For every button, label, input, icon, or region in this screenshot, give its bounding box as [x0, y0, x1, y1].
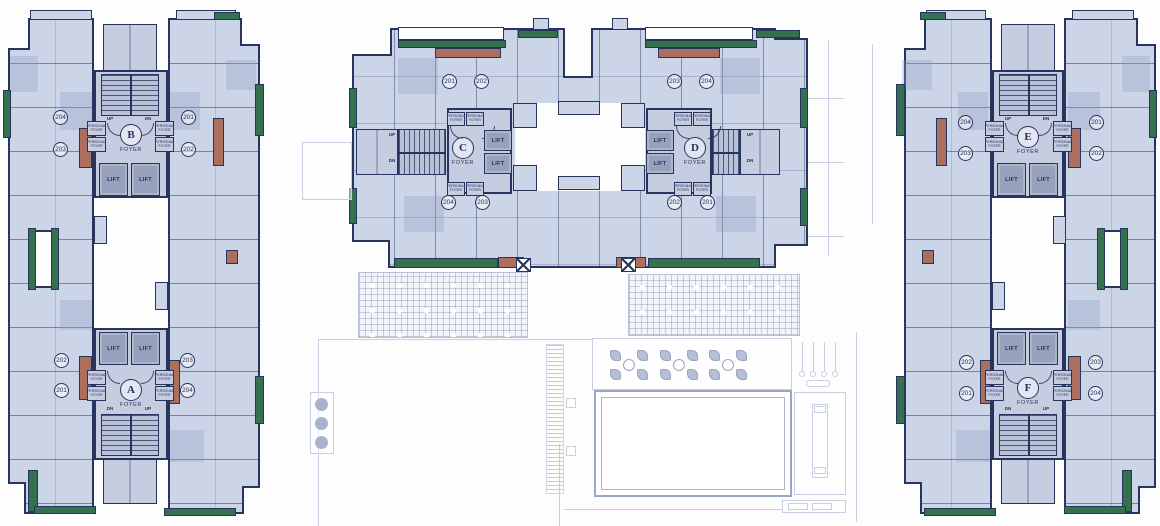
paving-line: [564, 509, 782, 510]
boundary-marker: [566, 398, 576, 408]
deck-slab: [788, 503, 808, 510]
pergola-post-line: [824, 342, 825, 372]
bench: [806, 380, 830, 387]
pergola-post: [832, 371, 838, 377]
chair-icon: [736, 350, 747, 361]
pergola-post: [821, 371, 827, 377]
chair-icon: [637, 350, 648, 361]
pool-inner-edge: [601, 397, 785, 490]
planter: [315, 398, 328, 411]
boundary-marker: [566, 446, 576, 456]
deck-slab: [812, 503, 832, 510]
chair-icon: [637, 369, 648, 380]
boundary-line: [318, 339, 594, 340]
pergola-post-line: [813, 342, 814, 372]
steps-ramp-hatch: [546, 344, 564, 494]
table-icon: [673, 359, 685, 371]
dining-set: [660, 350, 697, 379]
pergola-post-line: [802, 342, 803, 372]
site-floor-plan: UP DN PERSONAL FOYER PERSONAL FOYER PERS…: [0, 0, 1160, 526]
pergola-post: [810, 371, 816, 377]
boundary-line: [559, 444, 560, 526]
chair-icon: [660, 369, 671, 380]
chair-icon: [736, 369, 747, 380]
feature-cap: [814, 406, 826, 413]
paved-plaza-left: [358, 272, 528, 338]
planter: [315, 436, 328, 449]
chair-icon: [660, 350, 671, 361]
chair-icon: [709, 350, 720, 361]
paved-plaza-right: [628, 274, 800, 336]
dining-set: [709, 350, 746, 379]
amenity-courtyard: [0, 0, 1160, 526]
table-icon: [722, 359, 734, 371]
chair-icon: [610, 350, 621, 361]
chair-icon: [687, 369, 698, 380]
chair-icon: [610, 369, 621, 380]
feature-cap: [814, 467, 826, 474]
chair-icon: [687, 350, 698, 361]
pergola-post-line: [835, 342, 836, 372]
planter: [315, 417, 328, 430]
table-icon: [623, 359, 635, 371]
chair-icon: [709, 369, 720, 380]
pergola-post: [799, 371, 805, 377]
swimming-pool: [594, 390, 792, 497]
dining-set: [610, 350, 647, 379]
boundary-line: [856, 332, 857, 522]
